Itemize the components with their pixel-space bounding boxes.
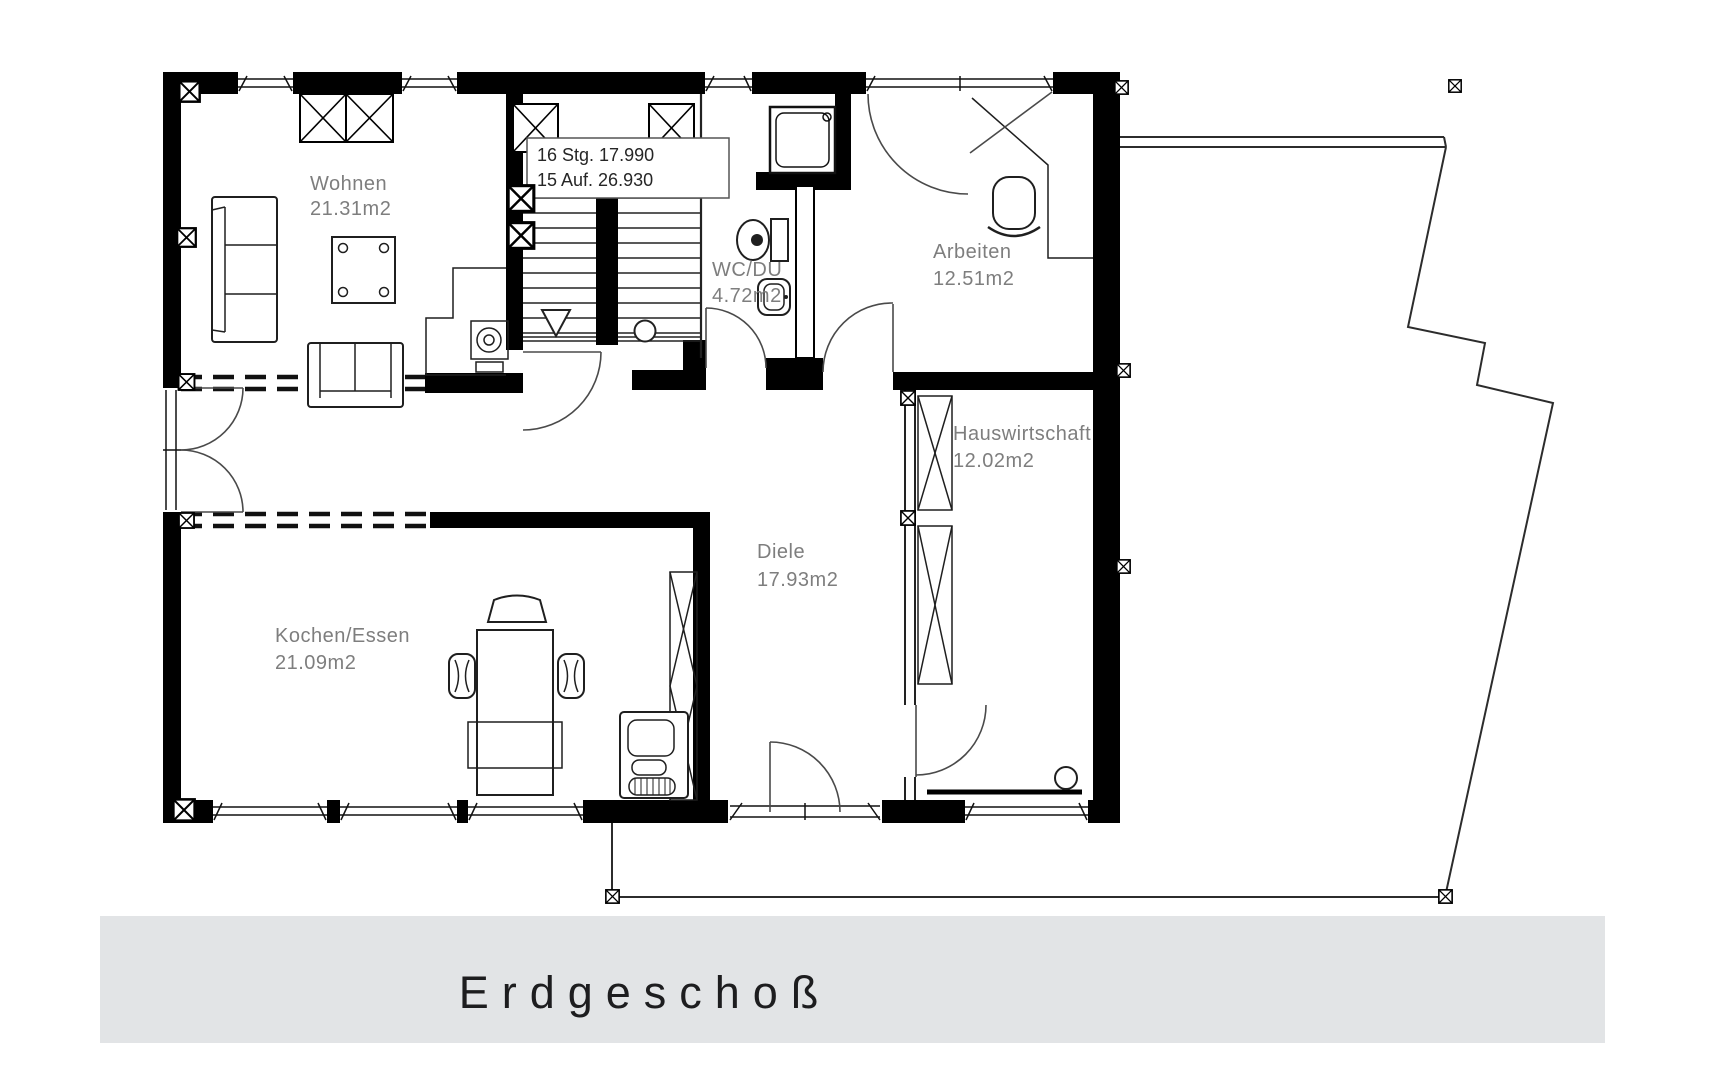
survey-marker <box>179 81 199 101</box>
survey-marker <box>606 890 619 903</box>
survey-marker <box>179 374 195 390</box>
room-area-hauswirtschaft: 12.02m2 <box>953 450 1034 472</box>
shaft-marker <box>508 186 534 212</box>
shaft-marker <box>508 223 534 249</box>
survey-marker <box>901 511 915 525</box>
wall-kitchen-vertical <box>693 512 710 800</box>
room-area-diele: 17.93m2 <box>757 569 838 591</box>
interior-thin-walls <box>701 94 915 800</box>
wall-wc-pillar <box>683 340 706 373</box>
dining-set <box>449 596 584 796</box>
survey-marker <box>1449 80 1461 92</box>
survey-marker <box>1439 890 1452 903</box>
office-chair <box>988 177 1040 236</box>
room-label-hauswirtschaft: Hauswirtschaft <box>953 423 1091 445</box>
survey-marker <box>901 391 915 405</box>
wall-right <box>1093 72 1120 823</box>
kitchen-sink <box>620 712 688 798</box>
room-area-wohnen: 21.31m2 <box>310 198 391 220</box>
stair-risers-text: 16 Stg. 17.990 <box>537 145 654 165</box>
door-wohnen-diele <box>523 352 601 430</box>
floor-plan-canvas: Erdgeschoß <box>0 0 1720 1086</box>
room-labels: Wohnen 21.31m2 Kochen/Essen 21.09m2 Diel… <box>275 173 1091 674</box>
shower <box>770 107 835 173</box>
wc-fixtures <box>737 107 835 315</box>
sofa-two-seat <box>308 343 403 407</box>
survey-marker <box>1115 81 1128 94</box>
room-label-wohnen: Wohnen <box>310 173 387 195</box>
kitchen-fixtures <box>426 268 697 800</box>
sofa-three-seat <box>212 197 277 342</box>
entry-double-door <box>181 388 243 512</box>
wall-kitchen-horizontal <box>430 512 710 528</box>
survey-marker <box>1117 364 1130 377</box>
survey-marker <box>177 228 196 247</box>
floor-title: Erdgeschoß <box>459 967 832 1018</box>
toilet <box>737 219 788 261</box>
survey-marker <box>173 799 194 820</box>
stair-newel-post <box>635 321 656 342</box>
wall-arbeiten-bottom <box>893 372 1120 390</box>
room-label-diele: Diele <box>757 541 805 563</box>
corner-desk <box>972 98 1093 258</box>
living-room-furniture <box>212 197 403 407</box>
floor-plan-drawing: Erdgeschoß <box>0 0 1720 1086</box>
room-area-wc: 4.72m2 <box>712 285 782 307</box>
tall-cabinet <box>918 396 952 510</box>
room-area-arbeiten: 12.51m2 <box>933 268 1014 290</box>
title-banner: Erdgeschoß <box>100 916 1605 1043</box>
door-arbeiten-entry <box>823 303 893 372</box>
room-label-kochen: Kochen/Essen <box>275 625 410 647</box>
stair-direction-arrow <box>542 310 570 336</box>
survey-marker <box>1117 560 1130 573</box>
office-furniture <box>972 98 1093 258</box>
survey-marker <box>179 513 194 528</box>
door-hauswirtschaft <box>916 705 986 777</box>
stair-treads-text: 15 Auf. 26.930 <box>537 170 653 190</box>
chair <box>449 654 475 698</box>
tall-cabinet <box>918 526 952 684</box>
room-label-arbeiten: Arbeiten <box>933 241 1012 263</box>
radiator <box>927 767 1082 792</box>
room-label-wc: WC/DU <box>712 259 782 281</box>
door-wc <box>706 308 766 368</box>
wall-wc-partition <box>796 186 814 358</box>
coffee-table <box>332 237 395 303</box>
banner-background <box>100 916 1605 1043</box>
kitchen-counter <box>426 268 508 375</box>
stair-info-box: 16 Stg. 17.990 15 Auf. 26.930 <box>527 138 729 198</box>
wall-shower-right <box>835 94 851 190</box>
wall-wc-right <box>766 358 823 390</box>
chair <box>558 654 584 698</box>
wall-stub <box>425 373 523 393</box>
chair <box>488 596 546 623</box>
room-area-kochen: 21.09m2 <box>275 652 356 674</box>
